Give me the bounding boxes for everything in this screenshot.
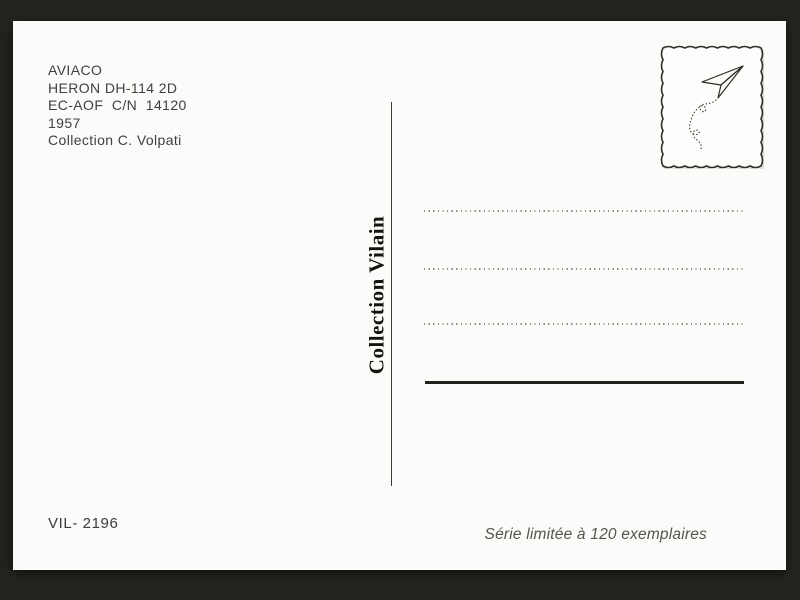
airline-name: AVIACO (48, 62, 187, 80)
address-solid-line (425, 381, 744, 384)
address-line-2 (424, 268, 746, 270)
vertical-divider (391, 102, 392, 486)
address-line-1 (424, 210, 746, 212)
postcard-back: AVIACO HERON DH-114 2D EC-AOF C/N 14120 … (13, 21, 786, 570)
stamp-frame (662, 47, 763, 168)
publisher-vertical-label: Collection Vilain (365, 216, 390, 374)
aircraft-type: HERON DH-114 2D (48, 80, 187, 98)
registration-serial: EC-AOF C/N 14120 (48, 97, 187, 115)
caption-block: AVIACO HERON DH-114 2D EC-AOF C/N 14120 … (48, 62, 187, 150)
photo-collection-credit: Collection C. Volpati (48, 132, 187, 150)
stamp-box (660, 45, 764, 169)
catalog-number: VIL- 2196 (48, 515, 118, 532)
year: 1957 (48, 115, 187, 133)
address-line-3 (424, 323, 746, 325)
edition-note: Série limitée à 120 exemplaires (485, 526, 707, 544)
